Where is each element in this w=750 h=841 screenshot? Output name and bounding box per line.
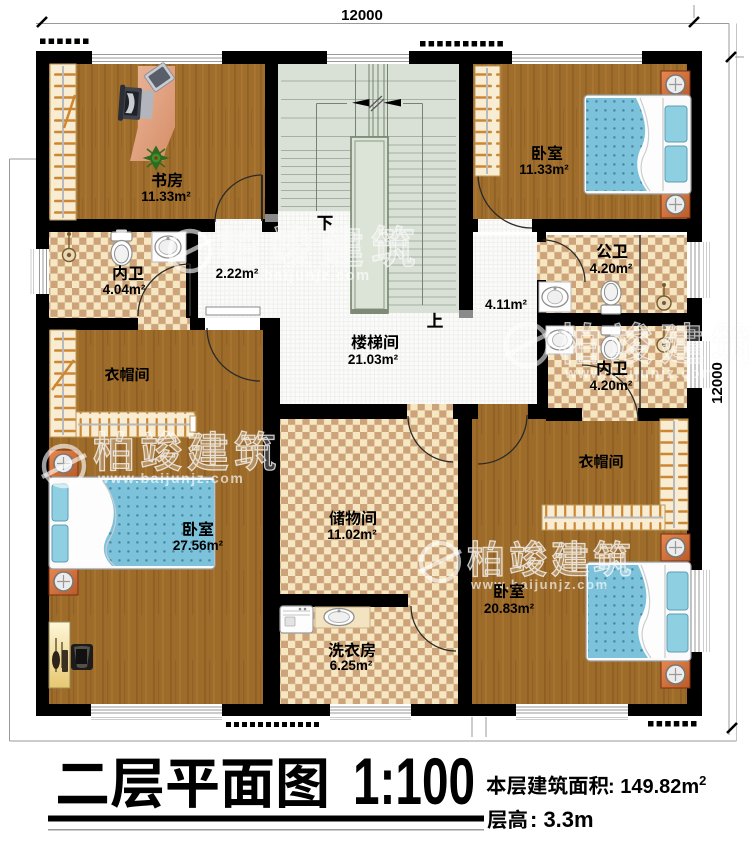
svg-text:www.baijunjz.com: www.baijunjz.com <box>470 577 609 592</box>
svg-text:21.03m²: 21.03m² <box>348 352 399 367</box>
svg-text:12000: 12000 <box>341 7 383 24</box>
svg-text:4.04m²: 4.04m² <box>103 282 146 297</box>
svg-text:11.02m²: 11.02m² <box>327 527 377 542</box>
svg-text:11.33m²: 11.33m² <box>519 162 569 177</box>
svg-text:www.baijunjz.com: www.baijunjz.com <box>97 470 244 486</box>
svg-text:4.20m²: 4.20m² <box>590 261 633 276</box>
svg-text:12000: 12000 <box>709 362 726 404</box>
svg-text:11.33m²: 11.33m² <box>141 189 191 204</box>
svg-text:www.baijunjz.com: www.baijunjz.com <box>564 366 716 382</box>
svg-text:27.56m²: 27.56m² <box>173 538 224 553</box>
svg-text:4.11m²: 4.11m² <box>485 297 528 312</box>
svg-text:20.83m²: 20.83m² <box>484 601 535 616</box>
svg-text:1:100: 1:100 <box>353 744 475 818</box>
svg-text:6.25m²: 6.25m² <box>330 658 373 673</box>
svg-text:4.20m²: 4.20m² <box>590 378 633 393</box>
svg-text:: 149.82m2: : 149.82m2 <box>608 773 706 798</box>
svg-text:: 3.3m: : 3.3m <box>530 807 594 832</box>
svg-text:2.22m²: 2.22m² <box>216 266 259 281</box>
